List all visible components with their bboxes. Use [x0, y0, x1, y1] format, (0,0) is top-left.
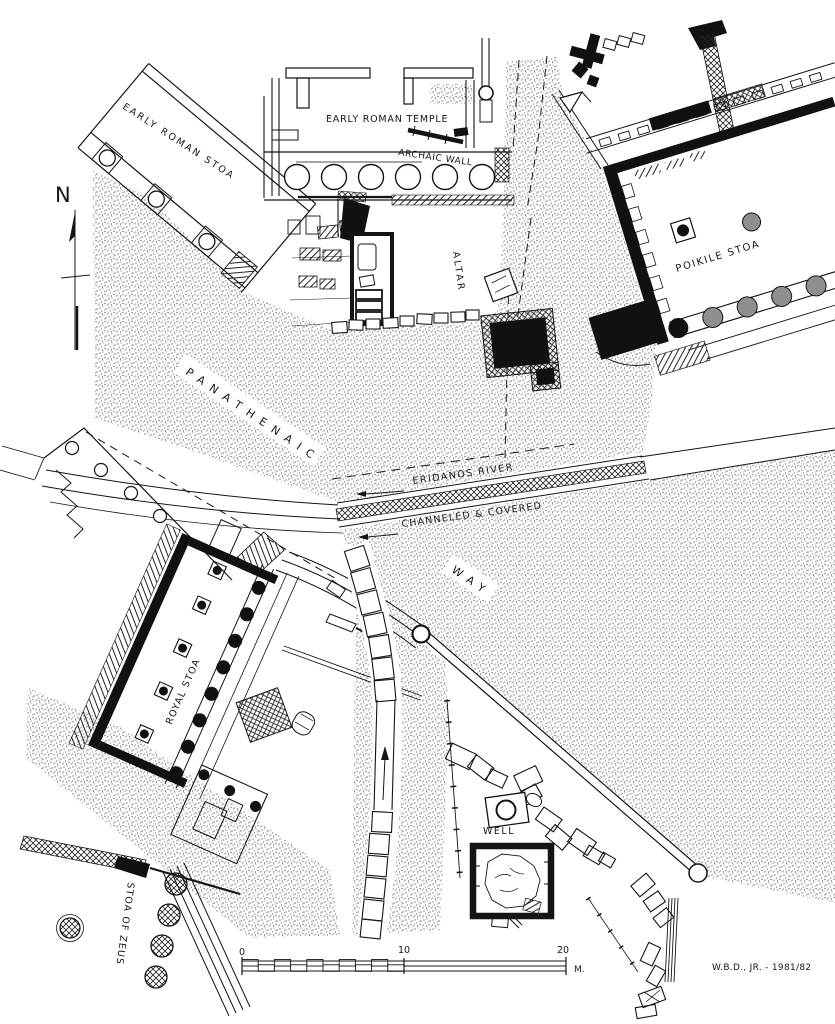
label-altar: ALTAR — [450, 251, 467, 293]
scale-tick-0: 0 — [239, 947, 245, 958]
well-structure — [445, 743, 562, 832]
label-poikile-stoa: POIKILE STOA — [675, 239, 762, 275]
early-roman-temple-building — [264, 38, 514, 236]
site-plan-svg: N 0 10 20 M. EARLY ROMAN STOA EARLY ROMA… — [0, 0, 835, 1024]
north-label: N — [55, 183, 71, 207]
scale-bar: 0 10 20 M. — [239, 945, 585, 975]
scale-tick-20: 20 — [557, 945, 569, 956]
credit-text: W.B.D., JR. - 1981/82 — [712, 963, 811, 973]
scale-tick-10: 10 — [398, 945, 410, 956]
altar-structure — [288, 191, 479, 333]
north-arrow: N — [55, 183, 90, 350]
crossroads-enclosure — [473, 846, 551, 928]
label-early-roman-stoa: EARLY ROMAN STOA — [120, 101, 236, 182]
archaeological-site-plan: N 0 10 20 M. EARLY ROMAN STOA EARLY ROMA… — [0, 0, 835, 1024]
well-shaft — [497, 801, 516, 820]
label-stoa-of-zeus: STOA OF ZEUS — [113, 882, 135, 966]
label-early-roman-temple: EARLY ROMAN TEMPLE — [326, 114, 448, 125]
manhole — [413, 626, 430, 643]
scale-unit: M. — [574, 965, 585, 975]
label-well: WELL — [483, 826, 515, 837]
